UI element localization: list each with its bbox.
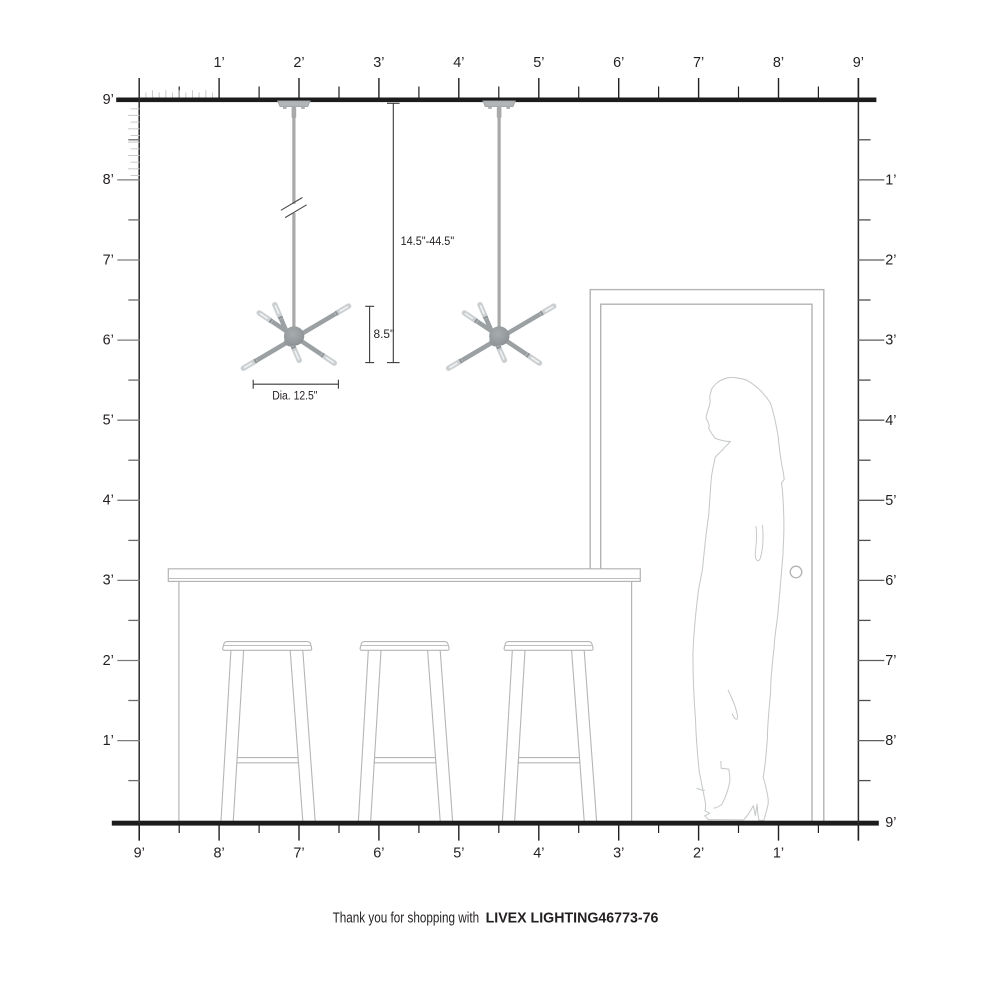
svg-text:5’: 5’ [885, 493, 896, 509]
svg-text:7’: 7’ [885, 653, 896, 669]
svg-text:9’: 9’ [134, 846, 145, 862]
svg-text:3’: 3’ [373, 55, 384, 71]
svg-text:6’: 6’ [373, 846, 384, 862]
svg-text:6’: 6’ [103, 332, 114, 348]
svg-text:6’: 6’ [613, 55, 624, 71]
svg-text:8’: 8’ [885, 733, 896, 749]
svg-text:4’: 4’ [885, 413, 896, 429]
svg-text:6’: 6’ [885, 573, 896, 589]
svg-text:8’: 8’ [103, 172, 114, 188]
svg-text:8’: 8’ [773, 55, 784, 71]
svg-text:Thank you for shopping with: Thank you for shopping with [333, 910, 480, 926]
svg-text:3’: 3’ [613, 846, 624, 862]
svg-text:1’: 1’ [103, 733, 114, 749]
svg-text:8’: 8’ [213, 846, 224, 862]
svg-text:LIVEX LIGHTING46773-76: LIVEX LIGHTING46773-76 [486, 909, 659, 926]
svg-text:2’: 2’ [885, 253, 896, 269]
svg-text:1’: 1’ [885, 173, 896, 189]
svg-text:8.5": 8.5" [374, 327, 395, 341]
svg-text:7’: 7’ [293, 846, 304, 862]
svg-text:2’: 2’ [693, 846, 704, 862]
svg-text:3’: 3’ [103, 573, 114, 589]
svg-text:9’: 9’ [853, 55, 864, 71]
svg-text:4’: 4’ [453, 55, 464, 71]
svg-text:9’: 9’ [103, 92, 114, 108]
svg-text:9’: 9’ [885, 815, 896, 831]
svg-text:7’: 7’ [103, 252, 114, 268]
svg-text:2’: 2’ [103, 653, 114, 669]
svg-text:3’: 3’ [885, 333, 896, 349]
svg-text:5’: 5’ [453, 846, 464, 862]
svg-text:2’: 2’ [293, 55, 304, 71]
svg-text:14.5"-44.5": 14.5"-44.5" [401, 234, 455, 248]
svg-text:5’: 5’ [533, 55, 544, 71]
svg-text:1’: 1’ [213, 55, 224, 71]
svg-text:4’: 4’ [533, 846, 544, 862]
svg-text:5’: 5’ [103, 413, 114, 429]
svg-text:7’: 7’ [693, 55, 704, 71]
svg-text:1’: 1’ [773, 846, 784, 862]
svg-text:Dia. 12.5": Dia. 12.5" [272, 388, 317, 402]
svg-text:4’: 4’ [103, 493, 114, 509]
